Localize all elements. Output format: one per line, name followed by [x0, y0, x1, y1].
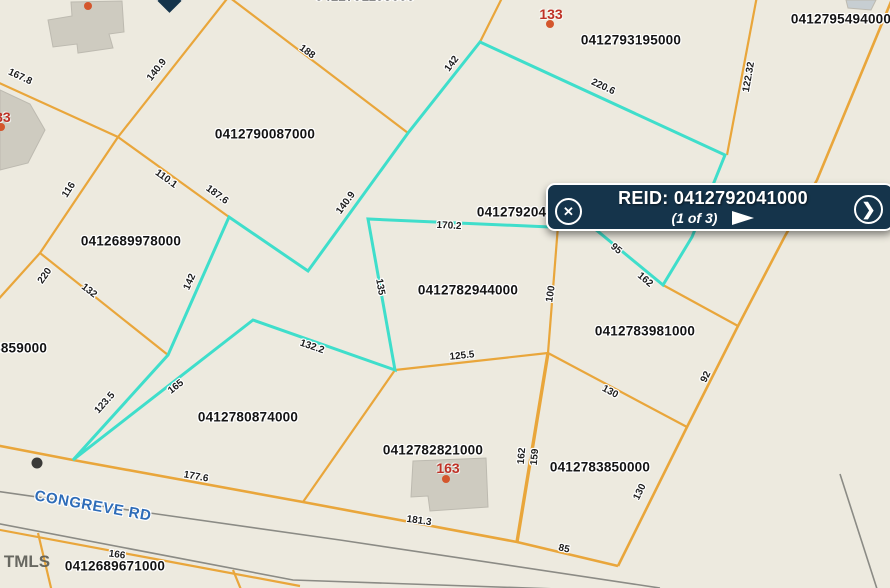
selected-parcel-outline [73, 42, 725, 460]
close-icon[interactable]: ✕ [555, 198, 582, 225]
parcel-id-label: 0412783981000 [595, 324, 695, 339]
parcel-info-popup: ✕ REID: 0412792041000 (1 of 3) ❯ [546, 183, 890, 231]
parcel-id-label: 0412780874000 [198, 410, 298, 425]
address-number-label: 133 [0, 109, 11, 125]
parcel-id-label: 0412783850000 [550, 460, 650, 475]
edge-dimension-label: 159 [529, 448, 541, 466]
address-point-dot [84, 2, 92, 10]
road-edge-line [840, 474, 878, 588]
tmls-watermark: TMLS [4, 552, 50, 572]
parcel-boundary-line [0, 253, 40, 303]
parcel-boundary-line [40, 253, 168, 355]
parcel-id-label: 0412791195000 [315, 0, 414, 4]
popup-reid-title: REID: 0412792041000 [584, 188, 842, 209]
edge-dimension-label: 85 [557, 542, 570, 555]
address-number-label: 133 [539, 6, 562, 22]
parcel-boundary-line [233, 570, 242, 588]
parcel-id-label: 0412790087000 [215, 127, 315, 142]
survey-marker-dot [32, 458, 43, 469]
parcel-id-label: 0412793195000 [581, 33, 681, 48]
edge-dimension-label: 170.2 [436, 220, 462, 232]
parcel-id-label: 0412688859000 [0, 341, 47, 356]
chevron-right-icon[interactable]: ❯ [854, 195, 883, 224]
parcel-id-label: 0412782821000 [383, 443, 483, 458]
popup-pagination: (1 of 3) [672, 210, 718, 226]
road-edge-line [0, 523, 645, 588]
parcel-boundary-line [303, 370, 395, 502]
building-footprint [846, 0, 876, 10]
building-footprint [0, 90, 45, 170]
parcel-id-label: 0412782944000 [418, 283, 518, 298]
parcel-boundary-line [480, 0, 503, 42]
parcel-boundary-line [225, 0, 408, 133]
address-point-dot [442, 475, 450, 483]
parcel-boundary-line [118, 0, 230, 137]
parcel-id-label: 0412689978000 [81, 234, 181, 249]
parcel-boundary-line [663, 285, 738, 326]
parcel-map-canvas[interactable]: 0412790087000041268997800004127931950000… [0, 0, 890, 588]
edge-dimension-label: 162 [516, 447, 528, 465]
forward-triangle-icon [732, 211, 754, 225]
edge-dimension-label: 166 [108, 548, 126, 561]
address-number-label: 163 [436, 460, 459, 476]
parcel-id-label: 0412689671000 [65, 559, 165, 574]
parcel-id-label: 0412795494000 [791, 12, 890, 27]
